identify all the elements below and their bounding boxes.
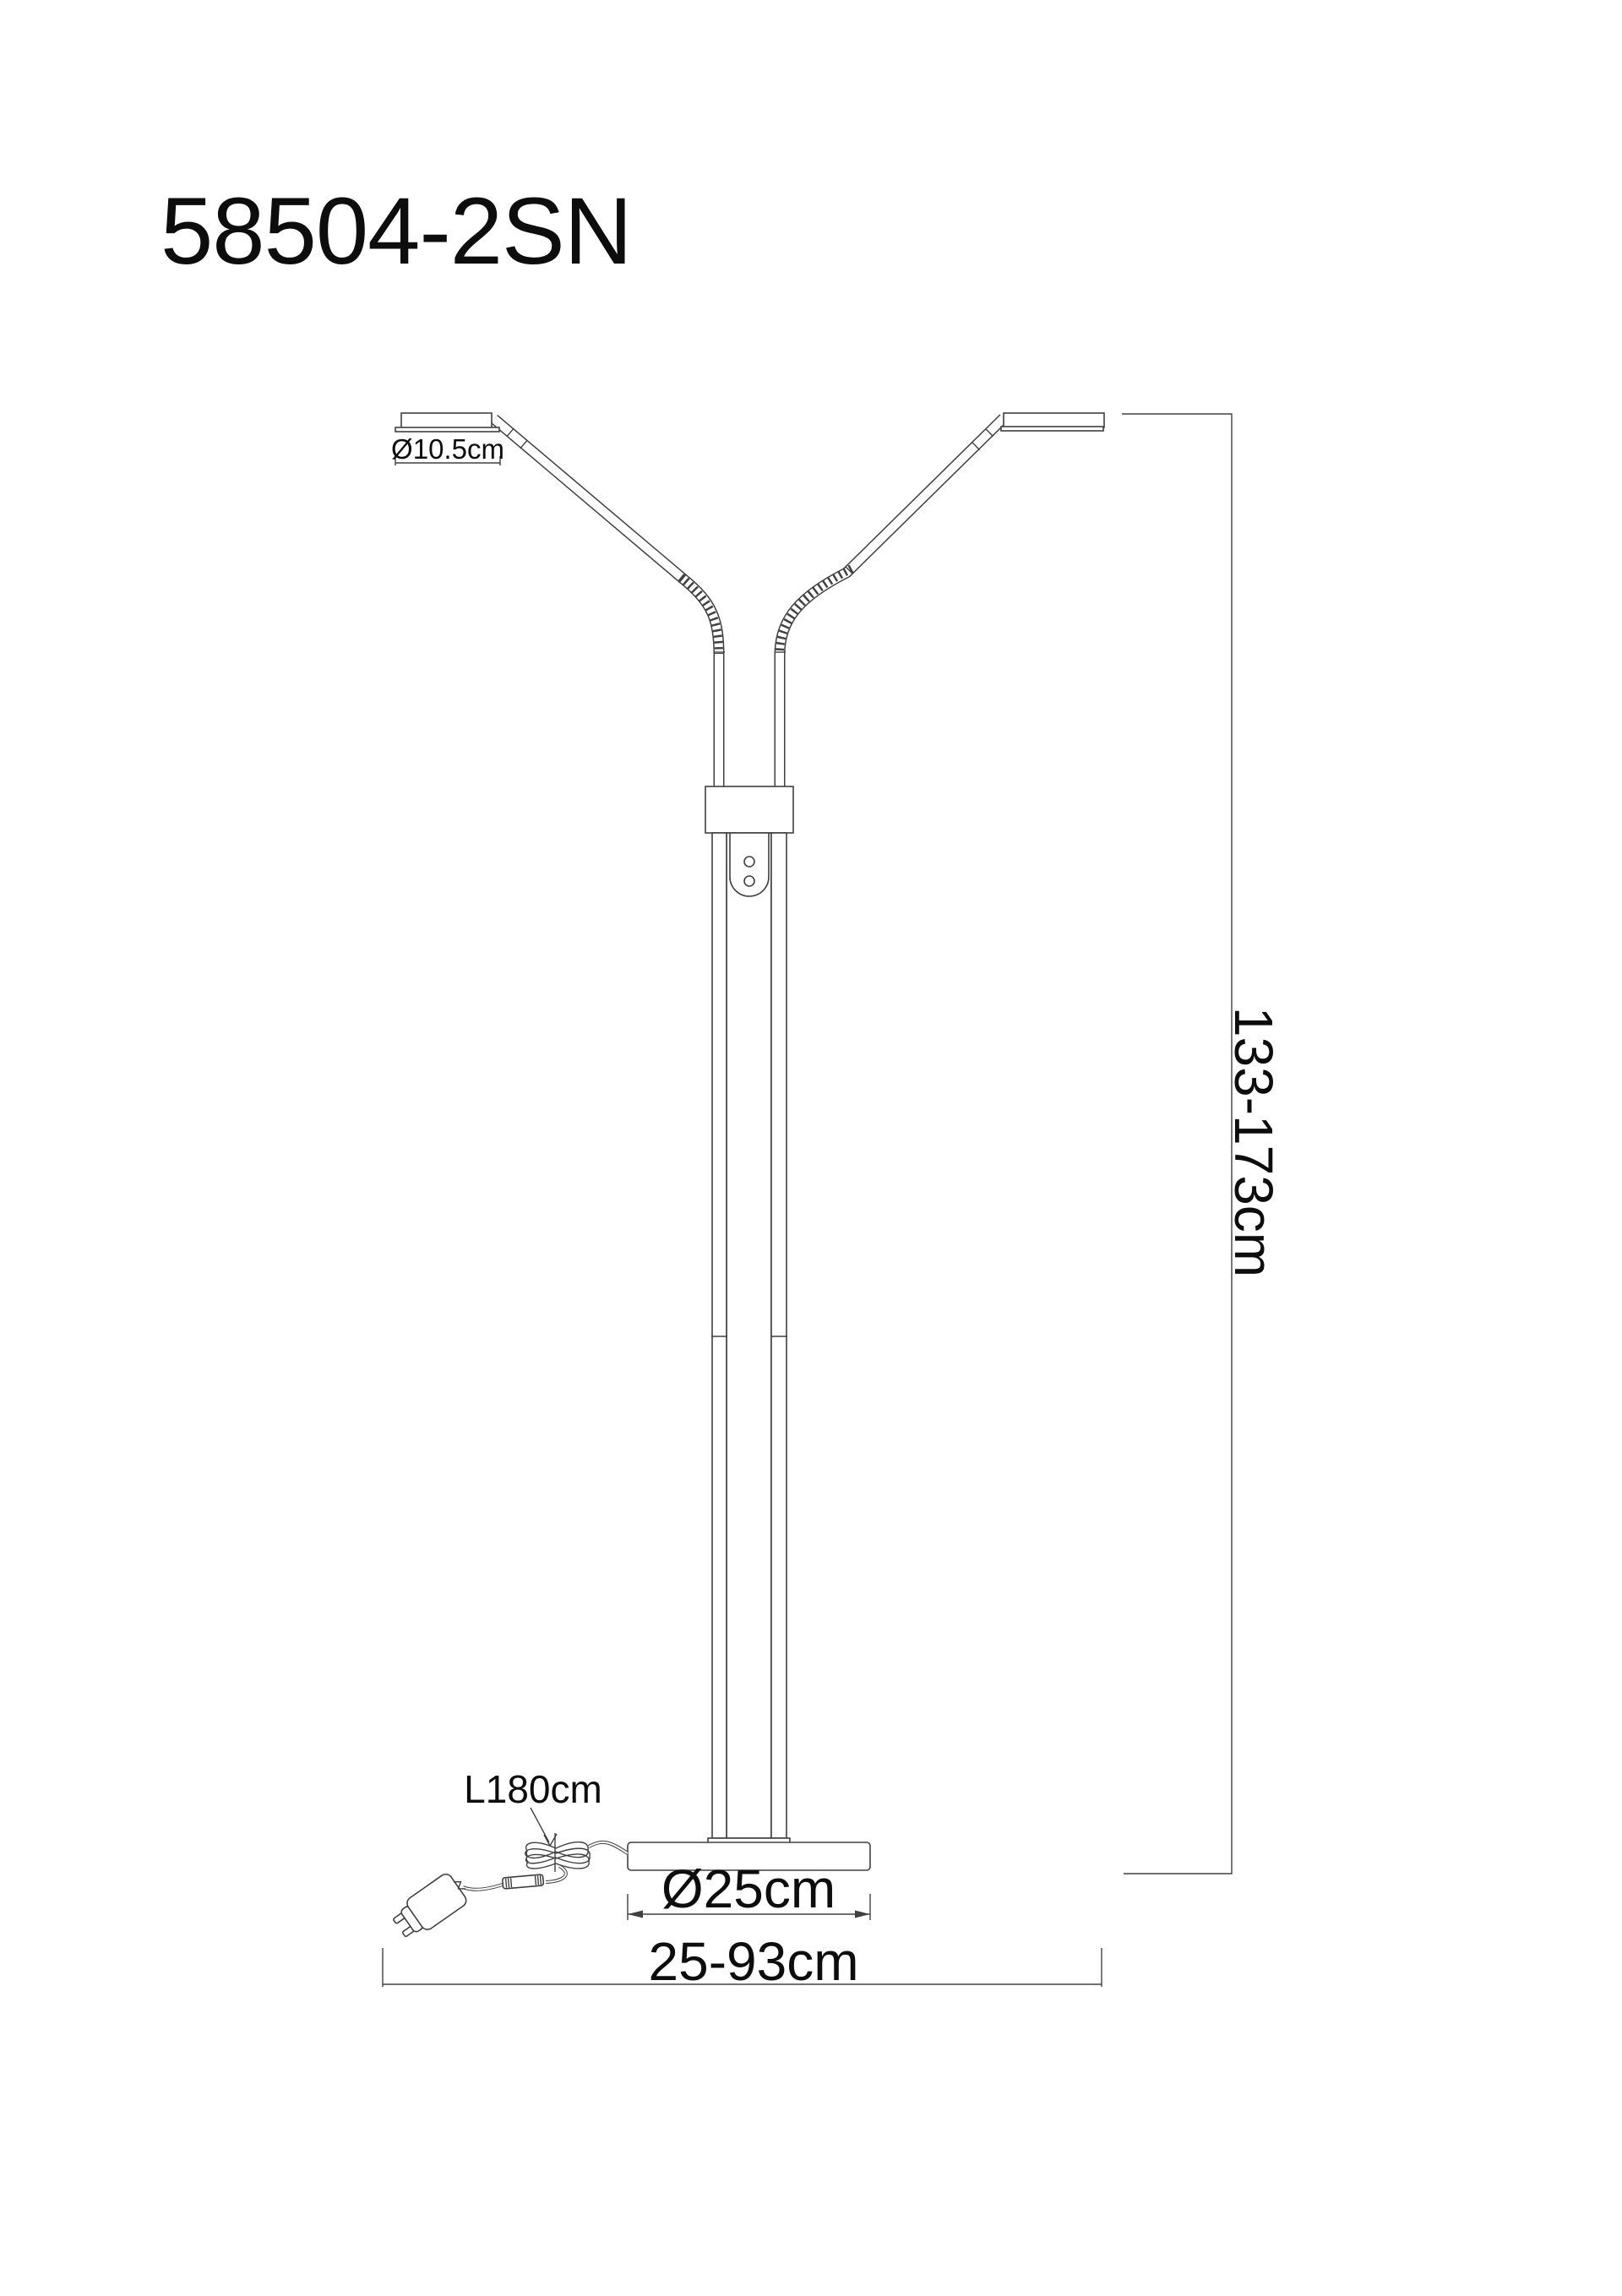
dim-width-range: 25-93cm [383,1931,1102,1992]
page-title: 58504-2SN [161,178,632,284]
dim-base-arrow-right [855,1911,870,1918]
lamp-head-right-body [1004,413,1104,427]
pole-tube-right [771,833,787,1838]
junction-box [705,786,793,833]
connector-rib [506,1879,507,1888]
pole [711,833,787,1838]
arm-left-fill [494,419,719,789]
lamp-head-left [395,413,499,432]
touch-button-top[interactable] [744,857,754,867]
dim-height-range: 133-173cm [1122,414,1284,1874]
power-plug [389,1869,473,1943]
width-range-label: 25-93cm [649,1931,859,1992]
dim-head-diameter: Ø10.5cm [391,433,504,465]
lamp-arms [494,418,1004,789]
coil-loop-3 [526,1854,589,1869]
height-range-label: 133-173cm [1223,1007,1284,1277]
coil-loop-2 [525,1848,590,1863]
dim-base-arrow-left [628,1911,643,1918]
base-diameter-label: Ø25cm [661,1858,835,1919]
dim-height-bracket [1122,414,1232,1874]
arm-right-outline [780,418,1004,789]
pole-tube-left [712,833,727,1838]
lamp-head-right-diffuser [1001,427,1103,431]
cord-length-label: L180cm [464,1767,602,1811]
connector-rib [511,1878,512,1887]
connector-rib [540,1875,541,1885]
arm-left-outline [494,419,719,789]
power-cord-coil [525,1833,590,1872]
technical-drawing-page: 58504-2SN Ø10.5cm [0,0,1622,2296]
power-cord-assembly [389,1833,628,1943]
inline-connector [503,1874,544,1889]
connector-rib [509,1879,509,1888]
coil-loop-1 [526,1842,589,1858]
connector-rib [536,1876,536,1885]
cord-length-leader [531,1808,549,1842]
dim-cord-length: L180cm [464,1767,602,1842]
touch-button-bottom[interactable] [744,876,754,886]
lamp-head-left-body [401,413,492,428]
lamp-head-left-diffuser [395,427,499,432]
arm-right-fill [780,418,1004,789]
floor-lamp-dimension-drawing: 58504-2SN Ø10.5cm [0,0,1622,2296]
pole-center-column [727,833,771,1838]
dim-base-diameter: Ø25cm [628,1858,870,1920]
coil-tie-fork-right [550,1834,557,1846]
lamp-head-right [1001,413,1104,431]
head-diameter-label: Ø10.5cm [391,433,504,465]
connector-rib [537,1875,538,1885]
